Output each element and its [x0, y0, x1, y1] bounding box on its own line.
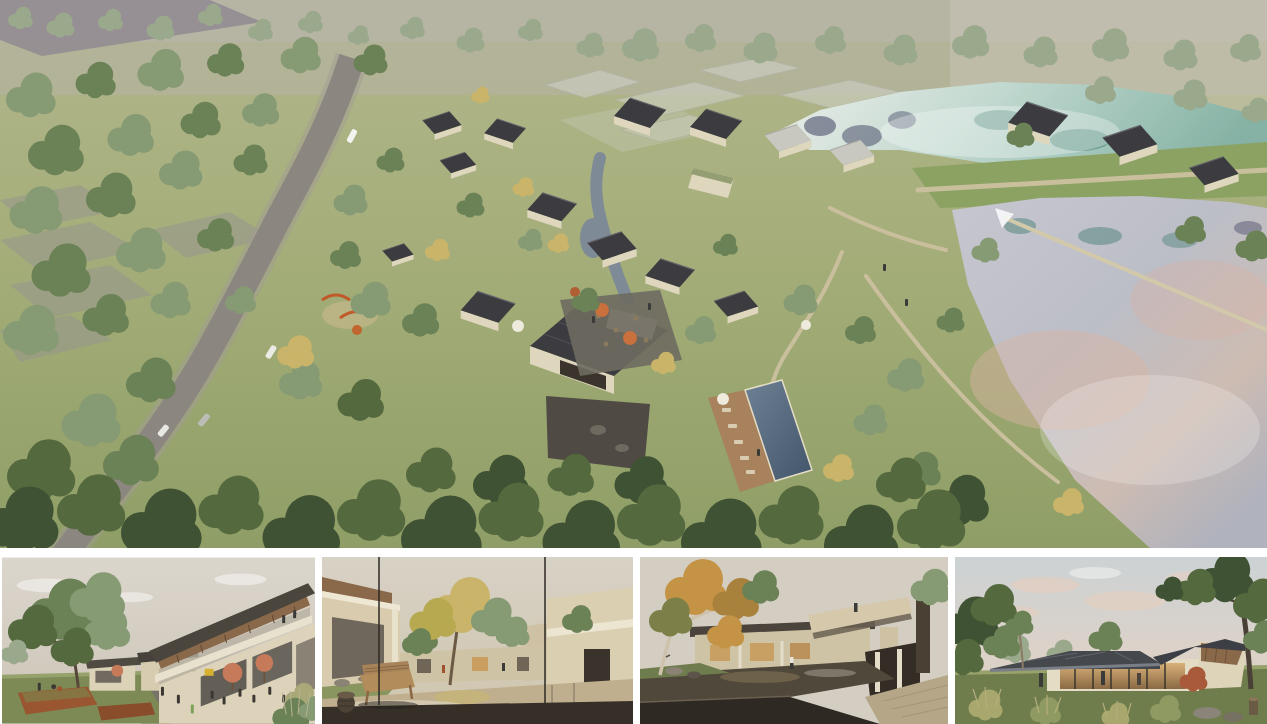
thumb-pavilion-render: [955, 557, 1267, 724]
interior-figure: [1101, 671, 1105, 685]
thumb-waterfall-court-svg: [640, 557, 948, 724]
carved-stool: [337, 692, 355, 714]
thumb-plaza-render: [2, 557, 315, 724]
render-board: [0, 0, 1267, 724]
distant-figure: [502, 663, 505, 671]
yellow-sign: [205, 669, 214, 676]
thumb-waterfall-court-render: [640, 557, 948, 724]
standing-figure: [1039, 673, 1043, 687]
balcony-figure: [854, 603, 858, 612]
hero-aerial-render: [0, 0, 1267, 548]
orange-umbrella: [623, 331, 637, 345]
orange-umbrella: [570, 287, 580, 297]
salmon-umbrella: [111, 665, 123, 677]
rock: [1223, 712, 1243, 722]
warm-window: [472, 657, 488, 671]
white-divider: [0, 548, 1267, 557]
rock: [1193, 707, 1221, 719]
thumb-pavilion-svg: [955, 557, 1267, 724]
stump: [1249, 697, 1258, 715]
hero-aerial-svg: [0, 0, 1267, 548]
thumb-plaza-svg: [2, 557, 315, 724]
interior-figure: [1137, 673, 1141, 685]
white-umbrella: [512, 320, 524, 332]
thumb-courtyard-pond-render: [322, 557, 633, 724]
thumbnail-row: [0, 557, 1267, 724]
thumb-courtyard-pond-svg: [322, 557, 633, 724]
distant-figure: [442, 665, 445, 673]
standing-figure: [790, 657, 794, 669]
white-umbrella: [717, 393, 729, 405]
